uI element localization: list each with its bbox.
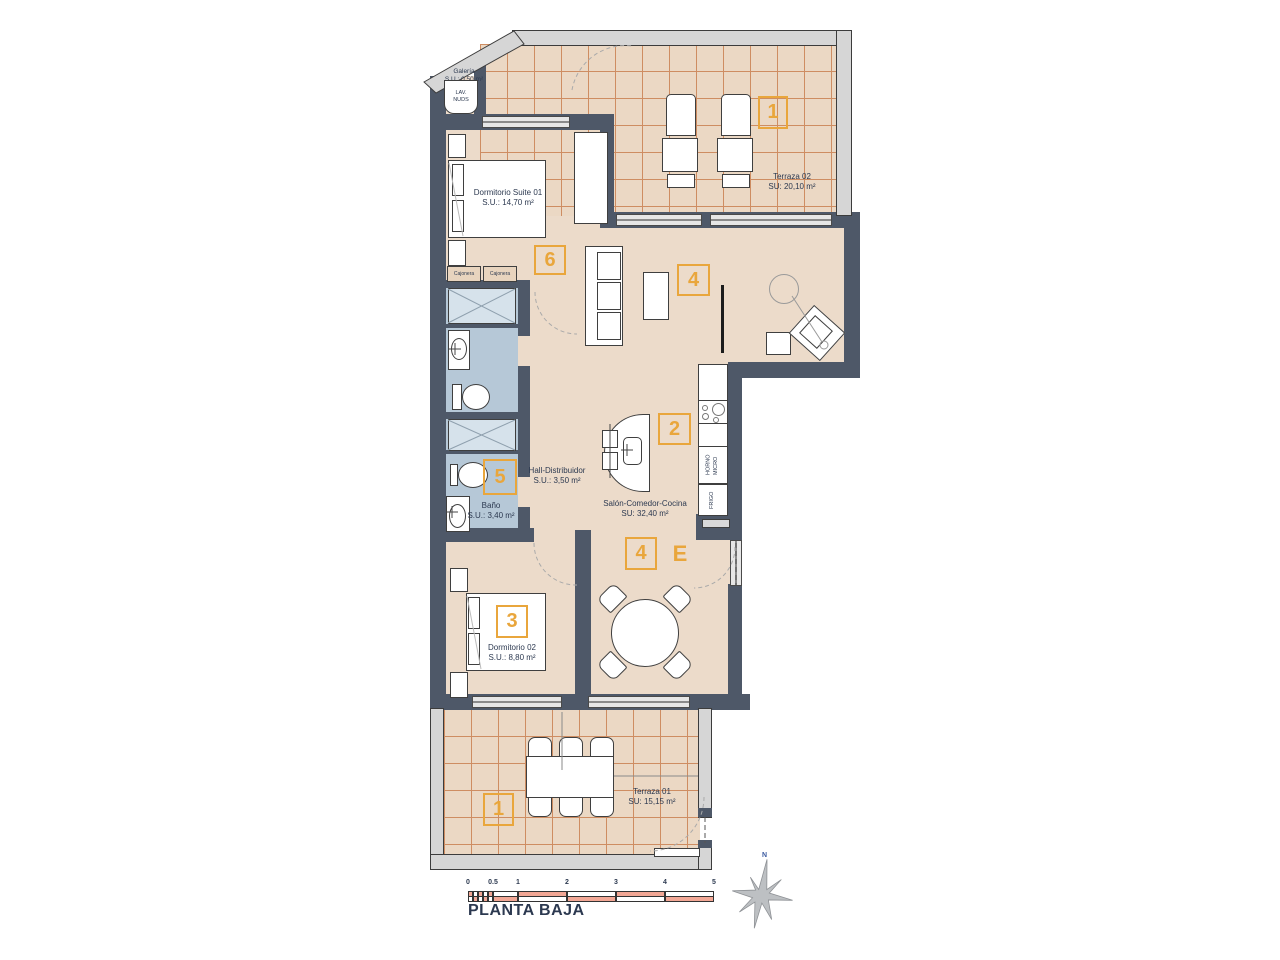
scale-tick: 5 xyxy=(712,879,716,886)
shower-x xyxy=(448,420,515,450)
plan-linework xyxy=(0,0,1280,960)
room-area: S.U.: 3,40 m² xyxy=(456,511,526,521)
shower-x xyxy=(448,289,515,323)
room-name: Baño xyxy=(456,501,526,511)
room-name: Terraza 01 xyxy=(610,787,694,797)
scale-tick: 0 xyxy=(466,879,470,886)
washer-label: LAV. NUDS xyxy=(453,90,469,104)
marker-suite: 6 xyxy=(534,245,566,275)
room-name: Salón-Comedor-Cocina xyxy=(590,499,700,509)
faucet-cross xyxy=(621,444,633,456)
room-area: S.U.: 8,80 m² xyxy=(462,653,562,663)
room-label-salon: Salón-Comedor-Cocina SU: 32,40 m² xyxy=(590,499,700,520)
scale-cell xyxy=(616,896,665,902)
room-label-terraza2: Terraza 02 SU: 20,10 m² xyxy=(750,172,834,193)
scale-tick: 1 xyxy=(516,879,520,886)
scale-tick: 2 xyxy=(565,879,569,886)
door-arc xyxy=(694,547,735,588)
marker-terraza2: 1 xyxy=(758,96,788,129)
room-name: Hall-Distribuidor xyxy=(510,466,604,476)
room-name: Terraza 02 xyxy=(750,172,834,182)
floor-plan: Cajonera Cajonera HORNO MICRO FRIGO xyxy=(0,0,1280,960)
lamp-arm xyxy=(792,296,822,342)
compass-north-label: N xyxy=(762,852,767,859)
room-name: Dormitorio Suite 01 xyxy=(452,188,564,198)
marker-terraza1: 1 xyxy=(483,793,514,826)
room-name: Galería xyxy=(432,68,496,76)
marker-dorm2: 3 xyxy=(496,605,528,638)
room-area: SU: 20,10 m² xyxy=(750,182,834,192)
scale-tick: 3 xyxy=(614,879,618,886)
lamp-base xyxy=(820,341,828,349)
scale-tick: 0.5 xyxy=(488,879,498,886)
marker-entrance: E xyxy=(666,538,694,570)
marker-salon-lower: 4 xyxy=(625,537,657,570)
marker-salon-upper: 4 xyxy=(677,264,710,296)
room-name: Dormitorio 02 xyxy=(462,643,562,653)
marker-bano: 5 xyxy=(483,459,517,495)
scale-cell xyxy=(665,896,714,902)
compass-rose xyxy=(728,855,798,933)
scale-tick: 4 xyxy=(663,879,667,886)
room-label-bano: Baño S.U.: 3,40 m² xyxy=(456,501,526,522)
door-arc xyxy=(572,46,632,90)
room-area: S.U.: 3,50 m² xyxy=(510,476,604,486)
room-area: SU: 32,40 m² xyxy=(590,509,700,519)
page-title: PLANTA BAJA xyxy=(468,902,585,920)
door-arc xyxy=(535,292,577,334)
faucet-cross xyxy=(449,343,461,355)
door-arc xyxy=(534,543,577,585)
room-label-suite: Dormitorio Suite 01 S.U.: 14,70 m² xyxy=(452,188,564,209)
room-area: S.U.: 14,70 m² xyxy=(452,198,564,208)
room-label-terraza1: Terraza 01 SU: 15,15 m² xyxy=(610,787,694,808)
room-area: SU: 15,15 m² xyxy=(610,797,694,807)
washer-box: LAV. NUDS xyxy=(444,80,478,114)
room-label-hall: Hall-Distribuidor S.U.: 3,50 m² xyxy=(510,466,604,487)
marker-kitchen: 2 xyxy=(658,413,691,445)
room-label-dorm2: Dormitorio 02 S.U.: 8,80 m² xyxy=(462,643,562,664)
